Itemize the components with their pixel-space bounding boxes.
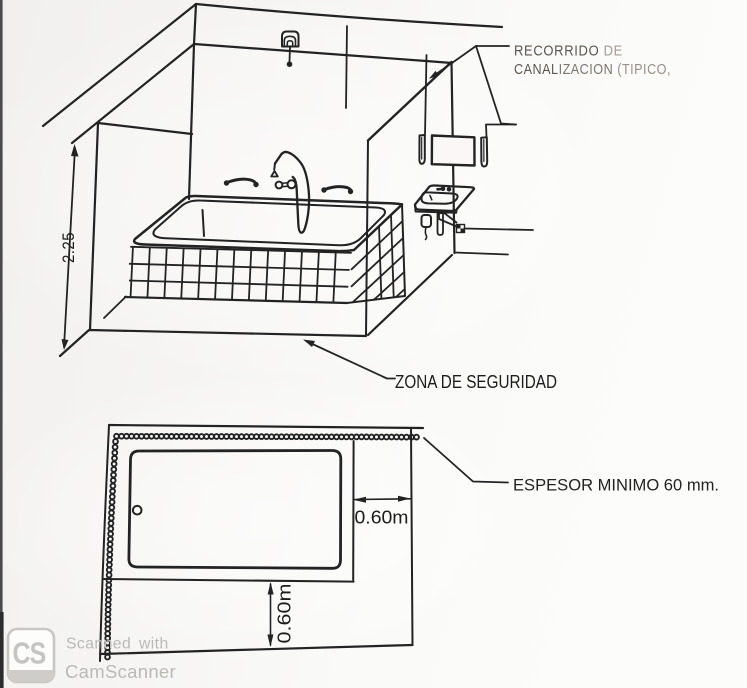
svg-text:0.60m: 0.60m (274, 584, 295, 644)
svg-text:ZONA DE SEGURIDAD: ZONA DE SEGURIDAD (395, 372, 557, 392)
svg-text:CANALIZACION (TIPICO,: CANALIZACION (TIPICO, (514, 61, 671, 78)
svg-text:Scanned with: Scanned with (66, 636, 169, 653)
svg-text:RECORRIDO DE: RECORRIDO DE (514, 43, 623, 60)
svg-text:CS: CS (13, 636, 46, 671)
svg-text:CamScanner: CamScanner (65, 661, 176, 682)
svg-text:2.25: 2.25 (59, 232, 78, 263)
svg-text:0.60m: 0.60m (355, 507, 409, 528)
svg-text:ESPESOR MINIMO 60 mm.: ESPESOR MINIMO 60 mm. (513, 477, 719, 495)
